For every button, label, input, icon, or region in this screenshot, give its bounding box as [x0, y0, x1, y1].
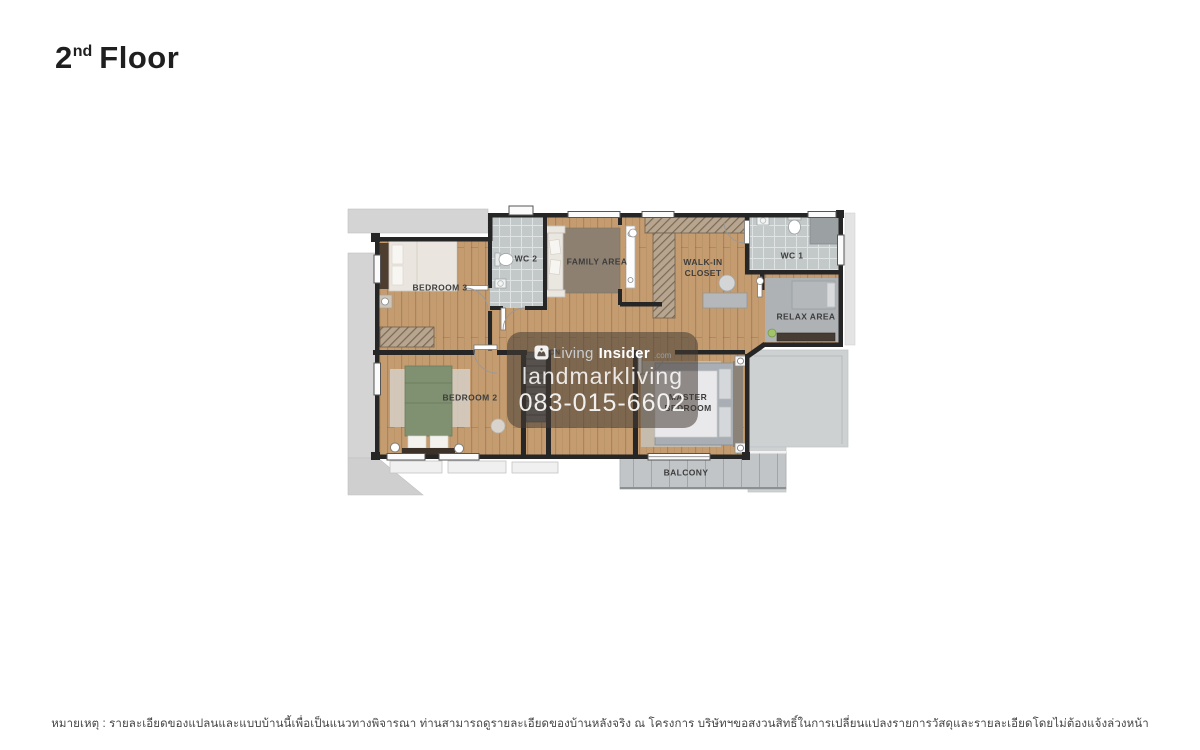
room-label-bedroom-2: BEDROOM 2	[442, 393, 497, 404]
relax-lounge-chair	[792, 281, 835, 309]
relax-bench	[777, 333, 835, 341]
room-label-balcony: BALCONY	[664, 468, 709, 479]
watermark-phone: 083-015-6602	[519, 389, 687, 417]
wc2-sink	[495, 279, 506, 288]
watermark-site-name: landmarkliving	[522, 364, 683, 389]
watermark-brand-domain: .com	[654, 351, 671, 360]
watermark-brand-light: Living	[553, 345, 594, 362]
footer-disclaimer: หมายเหตุ : รายละเอียดของแปลนและแบบบ้านนี…	[0, 715, 1200, 733]
wc1-shower	[810, 215, 839, 244]
watermark-brand-bold: Insider	[599, 345, 650, 362]
family-sofa	[546, 226, 565, 297]
room-label-wc-2: WC 2	[515, 254, 538, 265]
relax-plant	[768, 329, 776, 337]
title-word: Floor	[99, 40, 179, 75]
room-label-wc-1: WC 1	[781, 251, 804, 262]
watermark: LivingInsider.com landmarkliving 083-015…	[507, 332, 698, 428]
bedroom2-lamp-right	[455, 444, 464, 453]
title-ordinal: nd	[73, 43, 93, 60]
room-label-bedroom-3: BEDROOM 3	[412, 283, 467, 294]
bedroom3-nightstand	[378, 295, 392, 308]
page: 2ndFloor	[0, 0, 1200, 750]
bedroom3-wardrobe	[380, 327, 434, 347]
wc2-toilet	[495, 253, 513, 266]
bedroom2-lamp-left	[391, 443, 400, 452]
watermark-brand-line: LivingInsider.com	[534, 343, 672, 362]
room-label-family-area: FAMILY AREA	[567, 257, 628, 268]
title-number: 2	[55, 40, 73, 75]
wc1-toilet	[788, 215, 801, 234]
room-label-walk-in-closet: WALK-IN CLOSET	[668, 257, 738, 279]
page-title: 2ndFloor	[55, 40, 179, 76]
living-insider-logo-icon	[534, 345, 549, 360]
room-label-relax-area: RELAX AREA	[777, 312, 836, 323]
walkin-dresser	[703, 293, 747, 308]
bedroom2-pouf	[491, 419, 505, 433]
